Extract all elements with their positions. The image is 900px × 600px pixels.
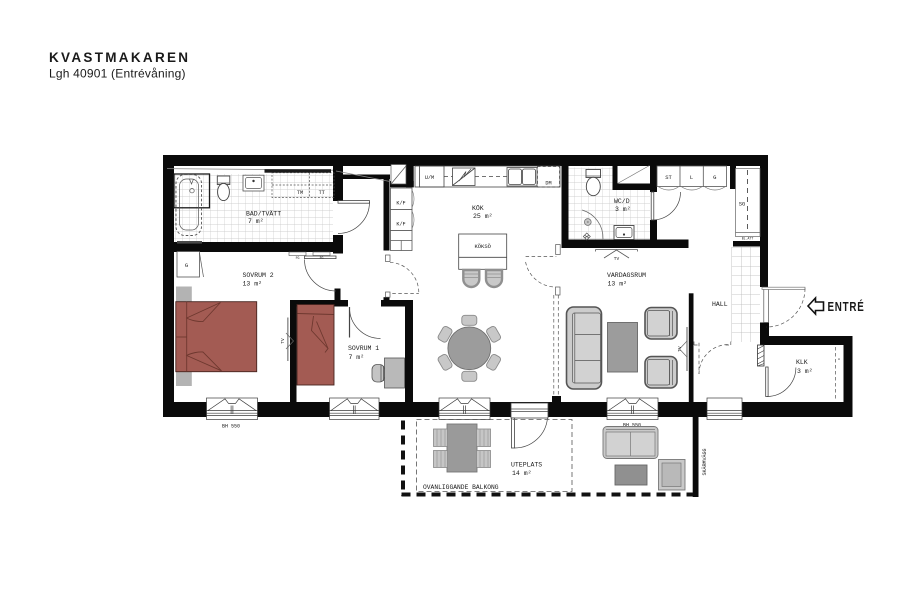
- svg-text:BAD/TVÄTT: BAD/TVÄTT: [246, 210, 281, 218]
- svg-text:TT: TT: [319, 190, 325, 196]
- svg-text:KÖK: KÖK: [472, 204, 484, 212]
- svg-text:DM: DM: [545, 181, 551, 187]
- svg-text:FG: FG: [320, 256, 324, 260]
- svg-text:KLK: KLK: [796, 359, 808, 366]
- svg-text:25 m²: 25 m²: [473, 213, 493, 220]
- svg-text:SKÄRMVÄGG: SKÄRMVÄGG: [701, 448, 708, 475]
- svg-text:G: G: [713, 174, 716, 181]
- svg-text:TV: TV: [614, 256, 620, 262]
- svg-text:ST: ST: [665, 174, 672, 181]
- svg-text:G: G: [185, 262, 188, 269]
- svg-text:TV: TV: [280, 338, 286, 344]
- svg-text:3 m²: 3 m²: [615, 206, 631, 213]
- svg-text:BL.ATT: BL.ATT: [742, 237, 754, 241]
- svg-text:SOVRUM 1: SOVRUM 1: [348, 345, 379, 352]
- svg-text:13 m²: 13 m²: [608, 281, 628, 288]
- svg-text:14 m²: 14 m²: [512, 470, 532, 477]
- svg-text:7 m²: 7 m²: [349, 354, 365, 361]
- svg-text:H: H: [838, 358, 840, 361]
- svg-text:TV: TV: [677, 346, 683, 352]
- svg-text:TM: TM: [297, 190, 303, 196]
- svg-text:BH 550: BH 550: [222, 424, 240, 430]
- svg-text:VARDAGSRUM: VARDAGSRUM: [607, 272, 646, 279]
- svg-text:KÖKSÖ: KÖKSÖ: [474, 243, 491, 250]
- svg-text:7 m²: 7 m²: [248, 218, 264, 225]
- svg-text:HALL: HALL: [712, 301, 728, 308]
- svg-text:ENTRÉ: ENTRÉ: [828, 299, 865, 314]
- svg-text:KVASTMAKAREN: KVASTMAKAREN: [49, 50, 190, 65]
- svg-text:L: L: [690, 174, 693, 181]
- svg-text:Lgh 40901 (Entrévåning): Lgh 40901 (Entrévåning): [49, 67, 186, 81]
- svg-text:K/F: K/F: [396, 222, 405, 228]
- svg-text:OVANLIGGANDE BALKONG: OVANLIGGANDE BALKONG: [423, 484, 499, 491]
- svg-text:FG: FG: [296, 256, 300, 260]
- svg-text:UTEPLATS: UTEPLATS: [511, 462, 542, 469]
- svg-text:SOVRUM 2: SOVRUM 2: [243, 272, 274, 279]
- svg-text:K/F: K/F: [396, 201, 405, 207]
- svg-text:WC/D: WC/D: [614, 198, 630, 205]
- svg-text:13 m²: 13 m²: [243, 280, 263, 287]
- svg-text:3 m²: 3 m²: [797, 368, 813, 375]
- svg-text:SG: SG: [739, 201, 746, 208]
- svg-text:U/M: U/M: [425, 175, 434, 181]
